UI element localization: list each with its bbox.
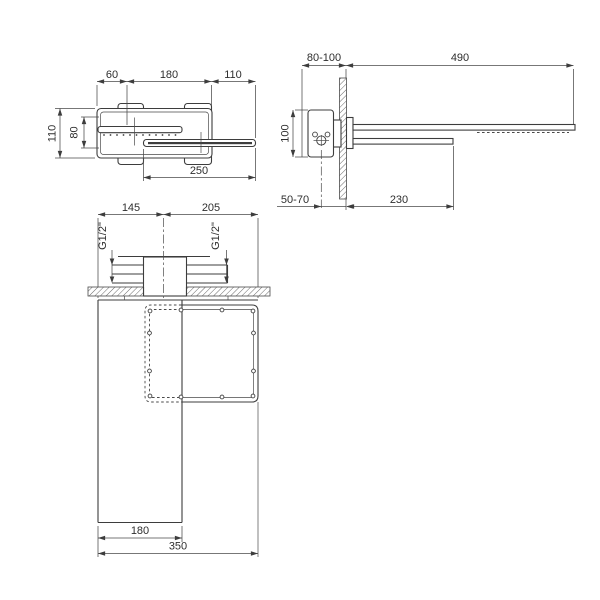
dim-label: 80	[69, 126, 81, 138]
spout-slot	[148, 142, 252, 144]
dim-label: 180	[131, 525, 149, 537]
dim-label: 490	[451, 52, 469, 64]
dim-label: 100	[280, 124, 292, 142]
dim-100: 100	[280, 110, 309, 157]
dim-230: 230	[347, 146, 454, 210]
dim-label: 205	[202, 202, 220, 214]
screw-holes	[148, 308, 256, 399]
technical-drawing: 110 80	[0, 0, 600, 600]
dim-label: 250	[190, 165, 208, 177]
dim-label: 230	[390, 194, 408, 206]
dim-label: 110	[224, 69, 242, 81]
spout-side	[353, 139, 453, 145]
thread-callout-left: G1/2"	[97, 222, 114, 283]
dim-label: 50-70	[281, 194, 309, 206]
dim-490: 490	[346, 52, 574, 125]
front-view: 145 205 G1/2" G1/2"	[88, 202, 270, 557]
dim-350-bottom: 350	[98, 541, 258, 554]
side-view: 80-100 490 100	[277, 52, 575, 210]
dim-80: 80	[69, 117, 100, 148]
dim-label: 145	[122, 202, 140, 214]
spout-face-plate	[145, 305, 258, 402]
dim-label: 350	[169, 541, 187, 553]
blade-side	[353, 125, 575, 131]
supply-stubs-right	[187, 265, 228, 283]
valve-connector	[333, 120, 341, 147]
blade-bottom-view	[98, 300, 182, 523]
valve-block	[144, 257, 187, 296]
thread-label: G1/2"	[97, 222, 109, 250]
wall-flange	[347, 118, 354, 149]
dim-label: 180	[160, 69, 178, 81]
drawing-canvas: 110 80	[0, 0, 600, 600]
thread-label: G1/2"	[210, 222, 222, 250]
shower-blade-edge	[98, 127, 182, 133]
dim-label: 80-100	[307, 52, 341, 64]
dim-label: 110	[47, 125, 59, 143]
top-view: 110 80	[47, 69, 256, 181]
supply-stubs-left	[112, 265, 144, 283]
dim-label: 60	[106, 69, 118, 81]
